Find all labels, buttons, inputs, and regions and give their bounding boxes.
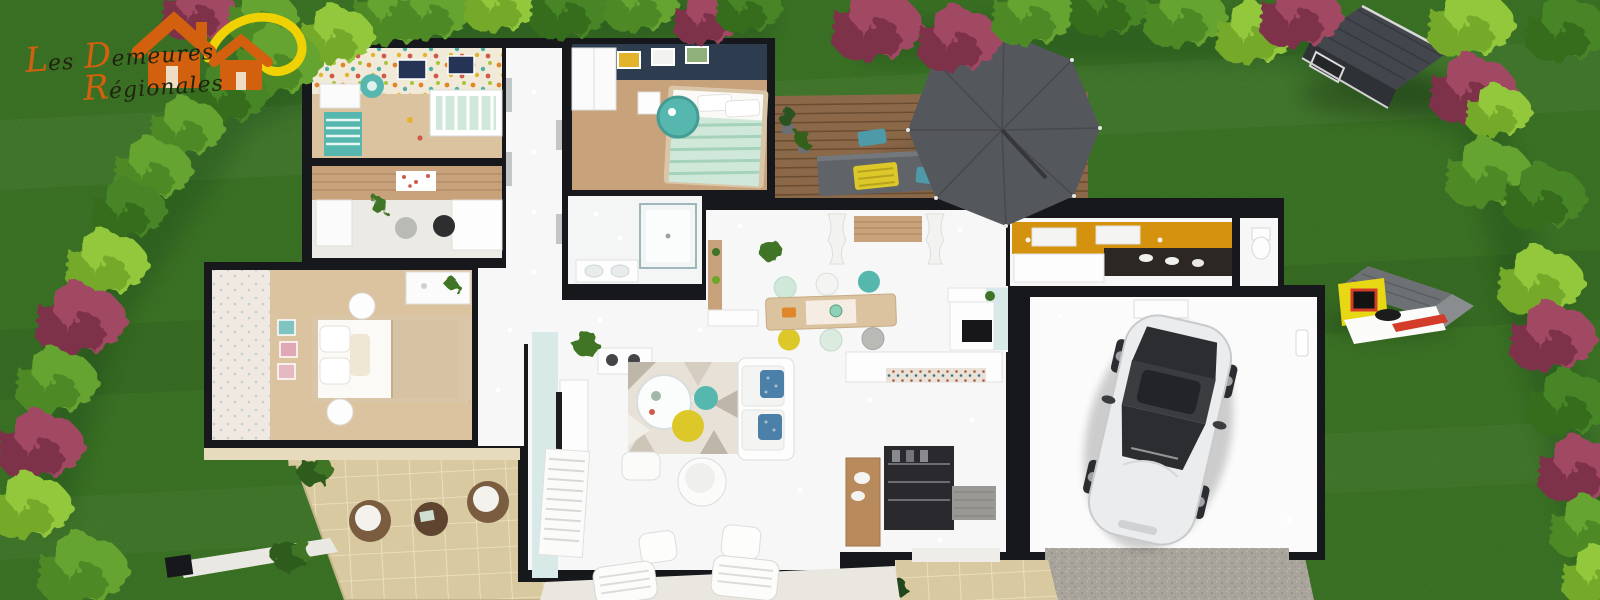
pendant-lamp bbox=[830, 305, 842, 317]
office-room bbox=[312, 166, 502, 258]
nursery-table-tray bbox=[367, 81, 377, 91]
navy-closet bbox=[572, 48, 616, 110]
crib bbox=[430, 90, 502, 136]
garage-door-gap bbox=[1045, 548, 1289, 560]
bathroom-vanity bbox=[576, 260, 638, 282]
cup bbox=[668, 108, 676, 116]
dining-table-set bbox=[765, 270, 898, 353]
cooktop bbox=[962, 320, 992, 342]
cement-tile-strip bbox=[886, 368, 986, 382]
entry-sideboard bbox=[846, 458, 880, 546]
master-wallpaper bbox=[212, 270, 270, 440]
kitchen-counter bbox=[1014, 254, 1104, 282]
scene-canvas: LesDemeures Régionales bbox=[0, 0, 1600, 600]
kitchen-plant bbox=[985, 291, 995, 301]
tray bbox=[782, 307, 796, 317]
nursery-frame-1 bbox=[398, 60, 426, 79]
blue-pillow-2 bbox=[758, 414, 782, 440]
wc-room bbox=[1240, 218, 1278, 286]
hall-door-3 bbox=[556, 120, 562, 150]
shower bbox=[640, 204, 696, 268]
toy bbox=[417, 135, 422, 140]
outdoor-bench-yellow bbox=[853, 162, 899, 190]
floorplan-render: LesDemeures Régionales bbox=[0, 0, 1600, 600]
nursery-dresser bbox=[320, 84, 360, 108]
playhouse-opening bbox=[1375, 309, 1401, 321]
pouf bbox=[622, 452, 660, 480]
hallway2-floor bbox=[478, 268, 524, 446]
bathroom bbox=[568, 196, 702, 284]
garage bbox=[1030, 297, 1317, 565]
master-bed bbox=[312, 316, 472, 402]
slatted-bench bbox=[538, 449, 589, 558]
master-frames bbox=[278, 320, 297, 379]
wicker-lounge-chair-2 bbox=[467, 481, 509, 523]
canopy-edge bbox=[204, 448, 520, 460]
kitchen-skylight-1 bbox=[1032, 228, 1076, 246]
tv bbox=[556, 392, 562, 456]
nursery-room bbox=[312, 48, 502, 158]
living-plant bbox=[573, 331, 599, 357]
armchair bbox=[678, 458, 726, 506]
kitchen-island bbox=[1104, 248, 1232, 276]
master-side-table-1 bbox=[349, 293, 375, 319]
lounger-2 bbox=[710, 555, 780, 600]
toy bbox=[407, 117, 413, 123]
navy-nightstand bbox=[638, 92, 660, 114]
office-chair bbox=[433, 215, 455, 237]
chair-gray bbox=[862, 327, 885, 350]
hall-door-2 bbox=[506, 152, 512, 186]
sofa bbox=[738, 358, 794, 460]
chair-mint bbox=[774, 276, 797, 299]
kitchen-skylight-2 bbox=[1096, 226, 1140, 244]
chair-white bbox=[816, 273, 839, 296]
office-desk bbox=[452, 200, 502, 250]
kitchen-annex bbox=[948, 288, 1008, 350]
master-dresser bbox=[406, 272, 470, 304]
office-pouf bbox=[395, 217, 417, 239]
doormat bbox=[952, 486, 996, 520]
office-cabinet bbox=[316, 200, 352, 246]
navy-bedroom bbox=[572, 44, 769, 190]
blue-pillow-1 bbox=[760, 370, 784, 398]
playhouse-window bbox=[1352, 290, 1376, 310]
entry-closet bbox=[884, 446, 954, 530]
nursery-frame-2 bbox=[448, 56, 474, 74]
wicker-table bbox=[414, 502, 448, 536]
toilet bbox=[1252, 228, 1270, 259]
dining-plant bbox=[759, 239, 781, 261]
master-bedroom bbox=[212, 270, 472, 440]
hall-door-4 bbox=[556, 214, 562, 244]
wicker-lounge-chair-1 bbox=[349, 500, 391, 542]
walkway-end-slab bbox=[165, 554, 194, 577]
nursery-bench bbox=[324, 112, 362, 156]
garage-vent bbox=[1296, 330, 1308, 356]
entry-console bbox=[846, 352, 1002, 382]
office-plant bbox=[372, 198, 388, 214]
master-side-table-2 bbox=[327, 399, 353, 425]
entry-door-gap bbox=[912, 548, 1000, 562]
hall-door-1 bbox=[506, 78, 512, 112]
chair-pale bbox=[820, 329, 843, 352]
